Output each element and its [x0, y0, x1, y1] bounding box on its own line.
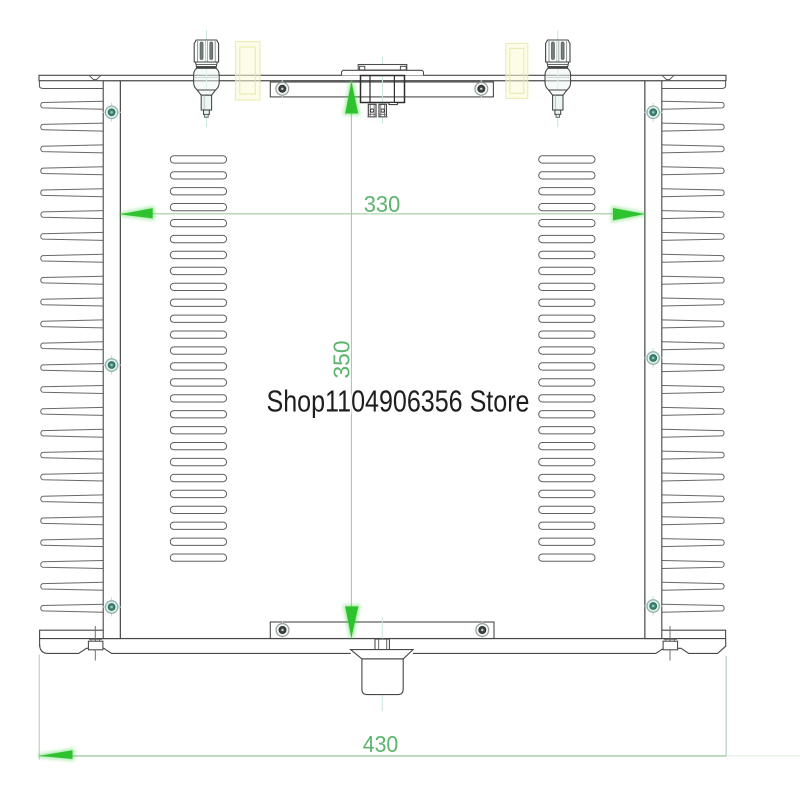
svg-text:350: 350	[329, 341, 355, 379]
svg-text:430: 430	[363, 731, 399, 757]
svg-text:Shop1104906356 Store: Shop1104906356 Store	[267, 384, 530, 419]
svg-text:330: 330	[364, 191, 401, 217]
